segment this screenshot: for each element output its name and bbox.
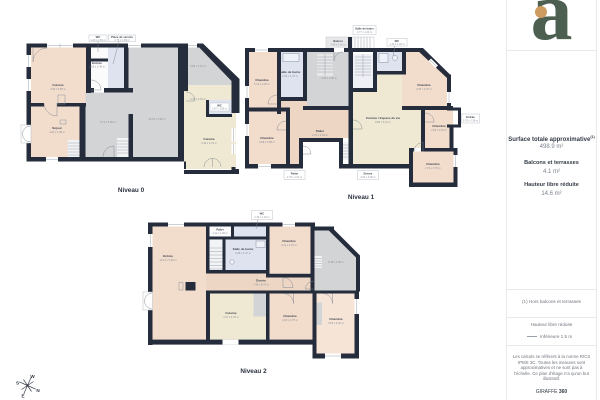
svg-text:Niveau 0: Niveau 0 [118,187,145,194]
svg-text:Palier: Palier [316,129,325,133]
svg-text:1.40 x 2.02 m: 1.40 x 2.02 m [330,44,345,47]
svg-text:Chambre: Chambre [426,162,440,166]
svg-text:Cuisine: Cuisine [203,137,214,141]
svg-text:8.80 x 5.31 m: 8.80 x 5.31 m [375,120,391,124]
svg-text:2.73 x 3.04 m: 2.73 x 3.04 m [312,133,328,137]
svg-text:2.69 x 1.37 m: 2.69 x 1.37 m [282,74,298,78]
svg-text:3.46 x 3.79 m: 3.46 x 3.79 m [201,141,217,145]
svg-text:N: N [36,388,40,393]
svg-text:4.99 x 5.55 m: 4.99 x 5.55 m [50,87,66,91]
svg-text:Palier: Palier [216,228,225,232]
svg-text:3.60 x 2.54 m: 3.60 x 2.54 m [431,128,447,132]
svg-text:Entrée: Entrée [466,115,475,119]
svg-text:Séjour: Séjour [52,126,62,130]
svg-text:5.14 x 2.60 m: 5.14 x 2.60 m [254,82,270,86]
svg-text:Palier: Palier [291,172,300,176]
svg-text:4.37 x 3.78 m: 4.37 x 3.78 m [223,315,239,319]
svg-text:2.39 x 1.02 m: 2.39 x 1.02 m [254,216,269,219]
svg-text:W: W [30,374,35,379]
svg-text:Chambre: Chambre [417,83,431,87]
svg-text:Entrée: Entrée [163,254,173,258]
svg-text:Balcon: Balcon [333,39,343,43]
svg-text:Entrée: Entrée [364,172,373,176]
svg-text:Entrée: Entrée [92,61,102,65]
svg-text:Chambre: Chambre [283,314,297,318]
svg-text:4.36 x 3.86 m: 4.36 x 3.86 m [321,76,337,80]
svg-text:Chambre: Chambre [255,78,269,82]
svg-text:2.72 x 3.79 m: 2.72 x 3.79 m [425,166,441,170]
svg-text:Niveau 2: Niveau 2 [240,368,267,375]
svg-text:WC: WC [260,212,265,216]
svg-text:3.45 x 2.76 m: 3.45 x 2.76 m [416,87,432,91]
svg-text:7.48 x 8.47 m: 7.48 x 8.47 m [253,283,269,287]
svg-text:3.98 x 3.58 m: 3.98 x 3.58 m [259,140,275,144]
svg-text:5.80 x 4.10 m: 5.80 x 4.10 m [190,64,206,68]
svg-text:Chambre: Chambre [329,317,343,321]
svg-text:10.07 x 3.95 m: 10.07 x 3.95 m [148,117,165,121]
svg-text:Chambre: Chambre [432,124,446,128]
svg-text:Cuisine: Cuisine [52,83,63,87]
svg-text:2.82 x 3.09 m: 2.82 x 3.09 m [360,176,375,179]
svg-text:5.02 x 4.02 m: 5.02 x 4.02 m [328,321,344,325]
svg-text:4.94 x 4.38 m: 4.94 x 4.38 m [49,130,65,134]
svg-text:Salle de bains: Salle de bains [233,247,254,251]
svg-text:0.79 x 1.38 m: 0.79 x 1.38 m [463,120,478,123]
svg-text:4.41 x 3.37 m: 4.41 x 3.37 m [281,243,297,247]
svg-text:Chambre: Chambre [260,136,274,140]
svg-text:Entrée: Entrée [256,279,266,283]
svg-text:Cuisine: Cuisine [225,311,236,315]
svg-text:2.40 x 2.54 m: 2.40 x 2.54 m [190,97,206,101]
svg-text:Chambre: Chambre [282,239,296,243]
svg-text:4.40 x 3.75 m: 4.40 x 3.75 m [282,318,298,322]
svg-text:Cuisine / Espace de vie: Cuisine / Espace de vie [366,116,400,120]
svg-text:1.12 x 1.46 m: 1.12 x 1.46 m [212,232,227,235]
svg-text:2.68 x 2.47 m: 2.68 x 2.47 m [235,251,251,255]
svg-text:1.77 x 1.40 m: 1.77 x 1.40 m [357,31,372,34]
svg-text:2.78 x 1.59 m: 2.78 x 1.59 m [114,39,129,42]
svg-text:1.42 x 1.02 m: 1.42 x 1.02 m [389,43,404,46]
svg-text:2.75 x 1.04 m: 2.75 x 1.04 m [287,176,302,179]
svg-text:0.97 x 1.89 m: 0.97 x 1.89 m [212,108,227,111]
svg-text:Niveau 1: Niveau 1 [348,194,375,201]
svg-text:S: S [16,381,19,386]
svg-text:Salle de bains: Salle de bains [280,70,301,74]
svg-text:5.72 x 5.89 m: 5.72 x 5.89 m [100,120,116,124]
svg-text:2.56 x 1.40 m: 2.56 x 1.40 m [89,65,105,69]
svg-text:E: E [21,394,24,399]
svg-text:10.21 x 5.08 m: 10.21 x 5.08 m [159,258,176,262]
svg-text:Salle de bains: Salle de bains [355,27,374,31]
svg-text:5.48 x 3.08 m: 5.48 x 3.08 m [328,260,344,264]
